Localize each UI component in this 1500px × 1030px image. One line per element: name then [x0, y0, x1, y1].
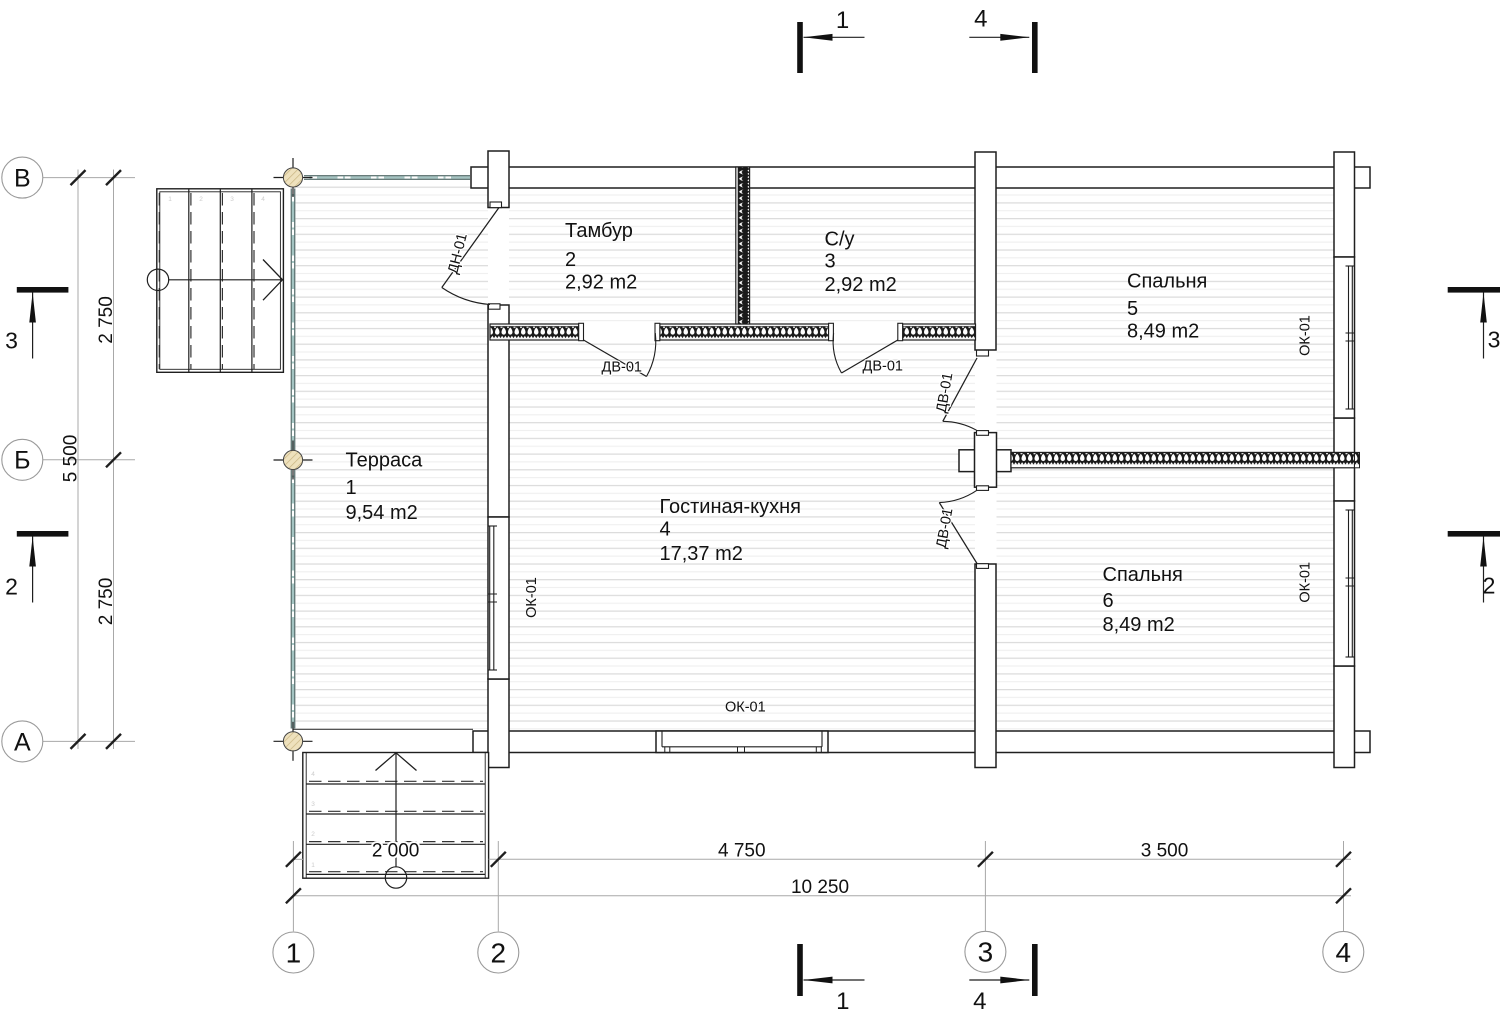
svg-text:8,49 m2: 8,49 m2 [1127, 321, 1199, 343]
svg-text:3: 3 [230, 196, 234, 203]
svg-text:Терраса: Терраса [346, 450, 424, 472]
svg-text:4: 4 [1336, 937, 1352, 968]
svg-text:В: В [14, 164, 31, 192]
svg-text:ДВ-01: ДВ-01 [863, 359, 903, 375]
svg-text:4 750: 4 750 [718, 840, 766, 861]
svg-text:2: 2 [565, 249, 576, 271]
svg-text:3: 3 [5, 328, 18, 354]
svg-text:2 750: 2 750 [96, 578, 117, 626]
svg-text:1: 1 [836, 7, 849, 34]
svg-text:ОК-01: ОК-01 [524, 577, 540, 618]
svg-text:2: 2 [311, 831, 315, 838]
svg-text:4: 4 [973, 988, 986, 1015]
svg-text:Гостиная-кухня: Гостиная-кухня [660, 496, 801, 518]
svg-text:3: 3 [1488, 326, 1500, 352]
svg-text:ДВ-01: ДВ-01 [602, 360, 642, 376]
svg-text:1: 1 [346, 477, 357, 499]
svg-text:4: 4 [660, 519, 671, 541]
svg-text:4: 4 [311, 771, 315, 778]
svg-text:С/у: С/у [825, 228, 855, 250]
svg-text:2,92 m2: 2,92 m2 [565, 272, 637, 294]
svg-text:4: 4 [974, 5, 987, 32]
svg-text:10 250: 10 250 [791, 877, 849, 898]
svg-text:3: 3 [825, 251, 836, 273]
svg-text:2,92 m2: 2,92 m2 [825, 274, 897, 296]
svg-text:1: 1 [286, 937, 302, 968]
svg-text:3 500: 3 500 [1141, 840, 1189, 861]
svg-text:3: 3 [311, 801, 315, 808]
svg-text:8,49 m2: 8,49 m2 [1103, 614, 1175, 636]
svg-text:ОК-01: ОК-01 [1298, 315, 1314, 356]
svg-text:2 750: 2 750 [96, 296, 117, 344]
svg-text:5: 5 [1127, 298, 1138, 320]
svg-text:17,37 m2: 17,37 m2 [660, 543, 743, 565]
svg-text:Б: Б [14, 447, 30, 475]
svg-text:2 000: 2 000 [372, 840, 420, 861]
svg-text:9,54 m2: 9,54 m2 [346, 502, 418, 524]
svg-text:ОК-01: ОК-01 [1298, 562, 1314, 603]
svg-text:6: 6 [1103, 590, 1114, 612]
svg-text:А: А [14, 728, 31, 756]
svg-text:2: 2 [491, 937, 507, 968]
svg-text:1: 1 [168, 196, 172, 203]
svg-text:1: 1 [311, 862, 315, 869]
svg-text:Спальня: Спальня [1127, 271, 1207, 293]
svg-text:2: 2 [199, 196, 203, 203]
svg-text:1: 1 [836, 988, 849, 1015]
svg-text:2: 2 [1483, 573, 1496, 599]
svg-text:2: 2 [5, 573, 18, 599]
svg-text:3: 3 [978, 937, 994, 968]
svg-text:Спальня: Спальня [1103, 564, 1183, 586]
svg-text:Тамбур: Тамбур [565, 220, 633, 242]
svg-text:ОК-01: ОК-01 [725, 699, 766, 715]
svg-text:4: 4 [261, 196, 265, 203]
svg-text:5 500: 5 500 [61, 435, 82, 483]
